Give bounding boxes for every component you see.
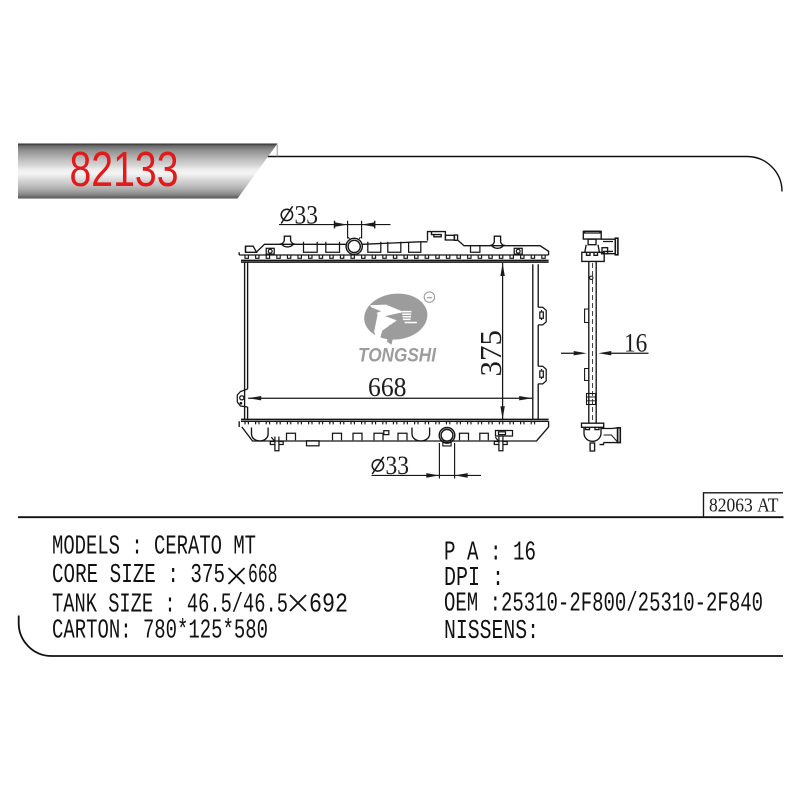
svg-text:668: 668 (368, 372, 407, 402)
svg-text:375: 375 (473, 330, 508, 377)
svg-text:82133: 82133 (70, 143, 179, 197)
svg-text:16: 16 (624, 328, 647, 357)
svg-text:NISSENS:: NISSENS: (444, 617, 539, 647)
svg-text:CARTON: 780*125*580: CARTON: 780*125*580 (52, 616, 268, 646)
svg-text:33: 33 (295, 200, 319, 229)
svg-text:OEM :25310-2F800/25310-2F840: OEM :25310-2F800/25310-2F840 (444, 589, 763, 619)
svg-text:692: 692 (309, 590, 348, 620)
svg-text:82063 AT: 82063 AT (709, 496, 779, 517)
svg-text:668: 668 (248, 561, 278, 591)
svg-text:33: 33 (386, 451, 410, 480)
svg-text:MODELS : CERATO MT: MODELS : CERATO MT (52, 532, 256, 562)
svg-text:TONGSHI: TONGSHI (358, 346, 437, 367)
svg-text:CORE SIZE : 375: CORE SIZE : 375 (52, 561, 225, 591)
